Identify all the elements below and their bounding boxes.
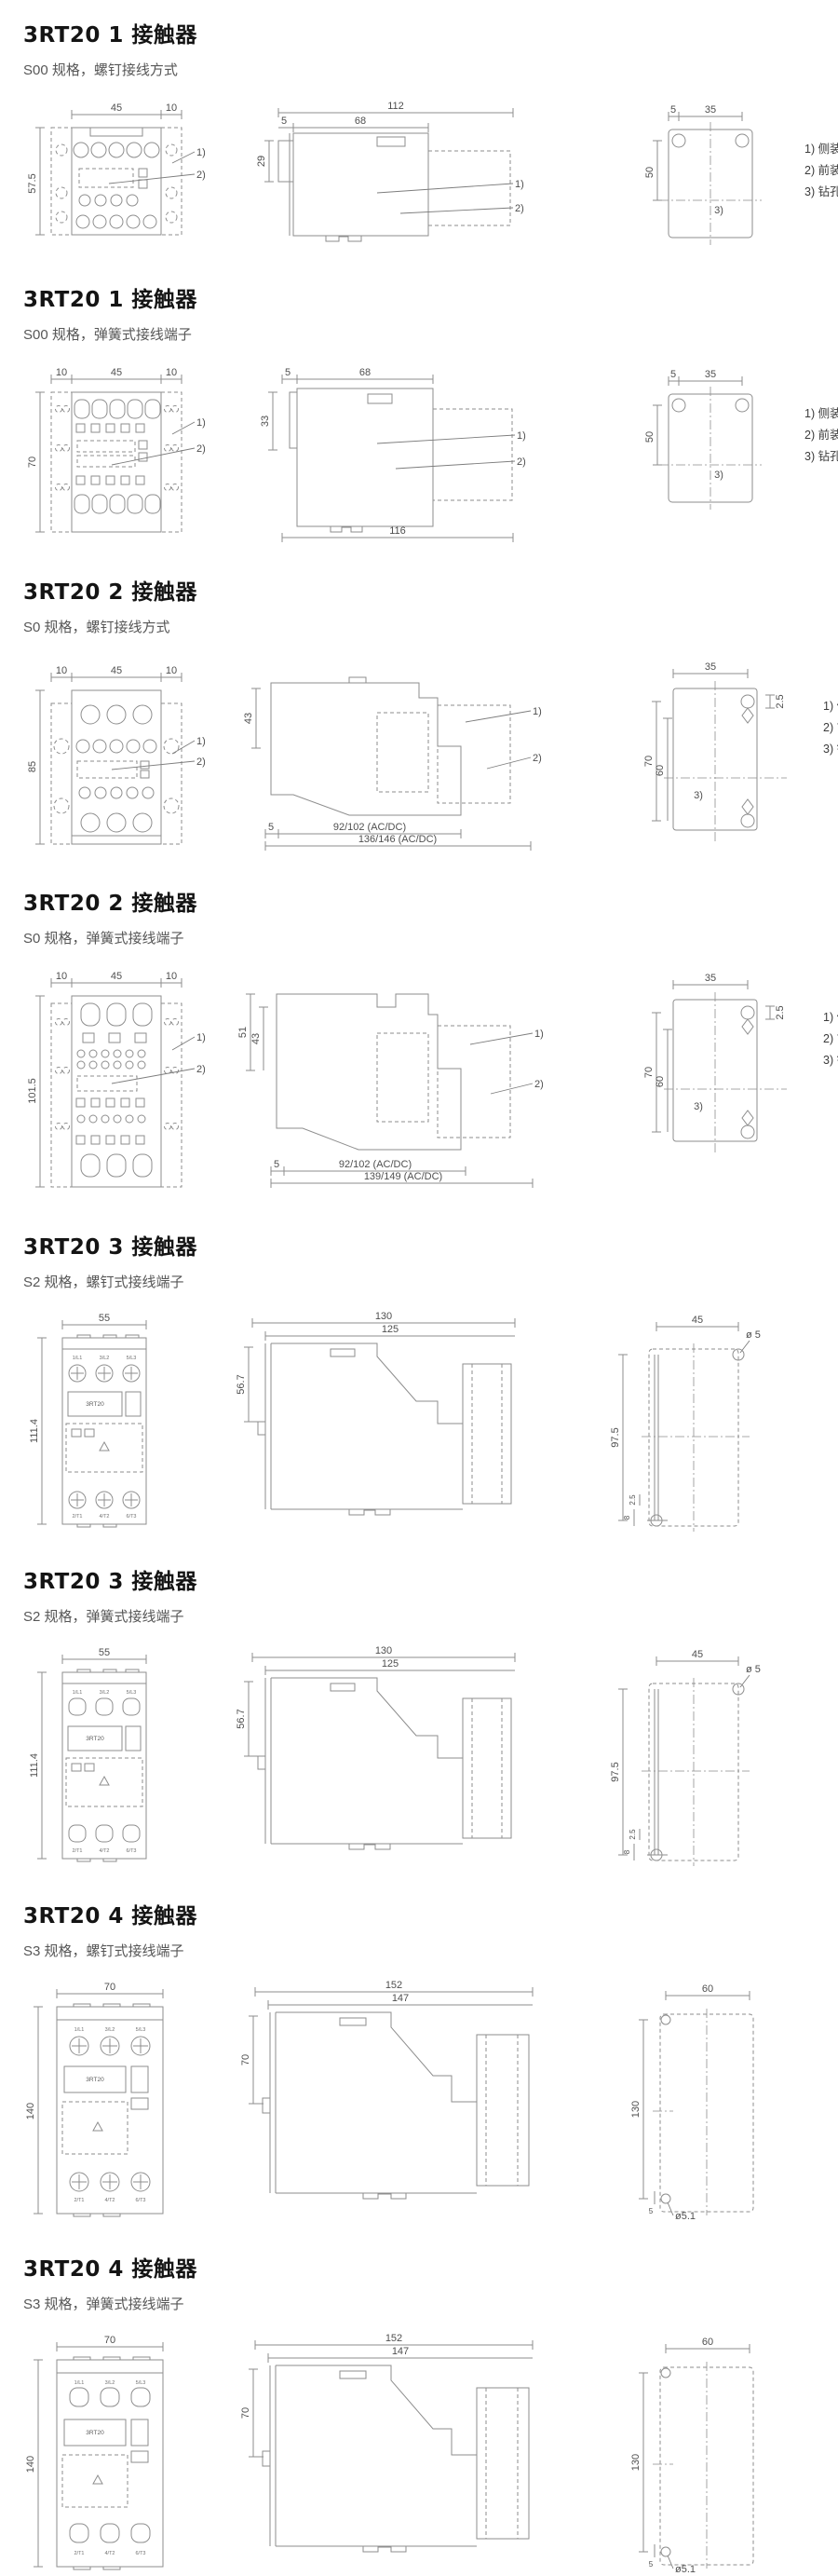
dim-depth-body: 147 <box>392 2346 409 2357</box>
terminal-label-2t1: 2/T1 <box>72 1514 82 1520</box>
dim-hole-spacing: 45 <box>692 1649 703 1660</box>
drill-outline <box>653 2362 753 2569</box>
dim-flange-left: 10 <box>56 367 67 378</box>
section-subtitle: S3 规格，弹簧式接线端子 <box>23 2294 838 2313</box>
dim-overhang: 5 <box>281 116 287 127</box>
dim-flange-right: 10 <box>166 971 177 982</box>
section-subtitle: S0 规格，弹簧式接线端子 <box>23 928 838 947</box>
callout-front-aux: 2) <box>196 756 206 768</box>
dim-hole-spacing: 60 <box>702 2337 713 2348</box>
side-dimensions: 130 125 56.7 <box>236 1311 515 1422</box>
dim-depth-total: 112 <box>387 101 404 112</box>
dim-width-body: 45 <box>111 367 122 378</box>
dim-hole-vertical: 50 <box>644 167 656 178</box>
drill-outline <box>664 992 787 1154</box>
front-view-drawing: 10 45 10 101.5 <box>23 968 209 1201</box>
dim-base-offset: 8 <box>623 1849 631 1854</box>
device-brand-label: 3RT20 <box>86 1401 104 1408</box>
side-dimensions: 152 147 70 <box>240 1980 533 2104</box>
terminal-label-3l2: 3/L2 <box>100 1690 110 1696</box>
side-outline <box>271 677 510 815</box>
front-dimensions: 10 45 10 101.5 <box>27 971 182 1187</box>
drawings-row: 10 45 10 85 <box>23 657 838 857</box>
drill-outline <box>659 122 762 245</box>
mounting-hole <box>672 399 685 412</box>
dim-front-height: 70 <box>240 2407 251 2419</box>
side-outline <box>258 1343 511 1515</box>
section-title: 3RT20 2 接触器 <box>23 574 838 606</box>
dim-depth-total: 139/149 (AC/DC) <box>364 1171 442 1182</box>
callout-side-aux: 1) <box>196 147 206 158</box>
terminal-label-5l3: 5/L3 <box>136 2380 146 2386</box>
dim-hole-vertical: 50 <box>644 431 656 443</box>
mounting-hole-top <box>661 2015 670 2024</box>
dim-width: 70 <box>104 2335 115 2346</box>
drill-plan-label: 3) <box>694 790 703 801</box>
dim-width: 70 <box>104 1982 115 1993</box>
front-view-drawing: 10 45 10 85 <box>23 657 209 857</box>
side-outline <box>277 994 510 1150</box>
dim-base-offset: 5 <box>649 2207 654 2215</box>
section-3rt202-spring: 3RT20 2 接触器 S0 规格，弹簧式接线端子 10 45 10 101.5 <box>0 885 838 1201</box>
terminal-label-2t1: 2/T1 <box>74 2551 84 2556</box>
legend-item-2: 2) 前装辅助触头 <box>823 1029 838 1050</box>
side-view-drawing: 51 43 5 92/102 (AC/DC) 139/149 (AC/DC) <box>237 968 549 1201</box>
dim-hole-vertical: 130 <box>630 2454 642 2471</box>
front-view-drawing: 55 111.4 1/L1 3/L2 5/L3 3RT20 <box>23 1646 196 1870</box>
dim-height: 111.4 <box>29 1419 40 1443</box>
legend-item-1: 1) 侧装辅助触头 <box>823 1007 838 1029</box>
dim-hole-spacing: 35 <box>705 661 716 673</box>
hole-diameter-label: ø5.1 <box>675 2564 696 2575</box>
front-view-drawing: 45 10 57.5 <box>23 100 209 253</box>
section-subtitle: S0 规格，螺钉接线方式 <box>23 617 838 636</box>
dim-hole-vertical-inner: 60 <box>655 1076 666 1087</box>
terminal-label-1l1: 1/L1 <box>74 2380 85 2386</box>
dim-hole-vertical-outer: 70 <box>643 756 655 767</box>
side-view-drawing: 5 68 33 116 1) <box>237 364 545 546</box>
side-dimensions: 51 43 5 92/102 (AC/DC) 139/149 (AC/DC) <box>237 994 533 1188</box>
legend: 1) 侧装辅助触头 2) 前装辅助触头 3) 钻孔图 <box>804 139 838 203</box>
mounting-hole-top <box>661 2368 670 2378</box>
dim-flange-left: 10 <box>56 665 67 676</box>
mounting-hole <box>736 134 749 147</box>
dim-depth-total: 130 <box>375 1645 392 1656</box>
drawings-row: 10 45 10 101.5 <box>23 968 838 1201</box>
callout-front-aux: 2) <box>534 1079 544 1090</box>
dim-flange-right: 10 <box>166 367 177 378</box>
callout-side-aux: 1) <box>196 1032 206 1043</box>
side-dimensions: 5 68 33 116 <box>260 367 513 542</box>
section-title: 3RT20 1 接触器 <box>23 17 838 48</box>
front-dimensions: 45 10 57.5 <box>27 102 182 235</box>
dim-depth-body: 125 <box>382 1324 399 1335</box>
hole-diameter-label: ø5.1 <box>675 2211 696 2222</box>
section-3rt204-spring: 3RT20 4 接触器 S3 规格，弹簧式接线端子 70 140 1/L1 3/… <box>0 2251 838 2576</box>
dim-depth-body: 125 <box>382 1658 399 1670</box>
mounting-hole-bottom <box>661 2547 670 2556</box>
dim-width-flange: 10 <box>166 102 177 114</box>
dim-width: 55 <box>99 1647 110 1658</box>
dim-slot-offset: 2.5 <box>775 1005 786 1019</box>
callout-side-aux: 1) <box>534 1029 544 1040</box>
callout-side-aux: 1) <box>196 417 206 429</box>
drawings-row: 55 111.4 1/L1 3/L2 5/L3 3RT20 <box>23 1646 838 1870</box>
dim-hole-vertical-inner: 60 <box>655 765 666 776</box>
dim-depth-total: 116 <box>389 525 406 537</box>
section-title: 3RT20 3 接触器 <box>23 1229 838 1261</box>
terminal-label-6t3: 6/T3 <box>135 2551 145 2556</box>
section-subtitle: S3 规格，螺钉式接线端子 <box>23 1941 838 1960</box>
section-subtitle: S00 规格，螺钉接线方式 <box>23 60 838 79</box>
legend: 1) 侧装辅助触头 2) 前装辅助触头 3) 钻孔图 <box>823 1007 838 1071</box>
side-callouts: 1) 2) <box>470 1029 544 1094</box>
section-3rt204-screw: 3RT20 4 接触器 S3 规格，螺钉式接线端子 70 140 1/L1 3/… <box>0 1898 838 2223</box>
hole-diameter-label: ø 5 <box>746 1329 761 1341</box>
drill-dimensions: 5 35 50 <box>644 104 742 200</box>
catalog-page: 3RT20 1 接触器 S00 规格，螺钉接线方式 45 10 57.5 <box>0 0 838 2576</box>
side-view-drawing: 152 147 70 <box>242 1981 554 2223</box>
dim-overhang: 5 <box>285 367 291 378</box>
front-outline <box>51 690 182 844</box>
keyhole-bottom <box>741 814 754 827</box>
drill-dimensions: 60 130 5 ø5.1 <box>630 2337 750 2575</box>
dim-slot-offset: 2.5 <box>628 1829 637 1840</box>
dim-hole-vertical: 97.5 <box>610 1762 621 1781</box>
legend-item-2: 2) 前装辅助触头 <box>823 717 838 739</box>
legend-item-1: 1) 侧装辅助触头 <box>804 139 838 160</box>
legend-item-3: 3) 钻孔图 <box>804 182 838 203</box>
dim-width-body: 45 <box>111 102 122 114</box>
terminal-label-4t2: 4/T2 <box>99 1848 109 1854</box>
mounting-hole <box>672 134 685 147</box>
drawings-row: 45 10 57.5 <box>23 100 838 253</box>
dim-depth-total: 130 <box>375 1311 392 1322</box>
drill-outline <box>653 2009 753 2215</box>
section-subtitle: S00 规格，弹簧式接线端子 <box>23 324 838 344</box>
legend-item-2: 2) 前装辅助触头 <box>804 425 838 446</box>
dim-depth-total: 152 <box>385 1980 402 1991</box>
dim-coil-height: 29 <box>256 156 267 167</box>
terminal-label-1l1: 1/L1 <box>74 2027 85 2033</box>
drill-pattern-drawing: 5 35 50 3) <box>642 364 782 518</box>
front-dimensions: 10 45 10 85 <box>27 665 182 844</box>
section-3rt201-screw: 3RT20 1 接触器 S00 规格，螺钉接线方式 45 10 57.5 <box>0 17 838 253</box>
side-callouts: 1) 2) <box>377 179 524 214</box>
side-view-drawing: 130 125 56.7 <box>237 1646 535 1870</box>
section-3rt201-spring: 3RT20 1 接触器 S00 规格，弹簧式接线端子 10 45 10 70 <box>0 281 838 546</box>
section-subtitle: S2 规格，螺钉式接线端子 <box>23 1272 838 1291</box>
dim-top-height: 43 <box>243 713 254 724</box>
keyhole-top <box>741 1006 754 1019</box>
dim-depth-body: 147 <box>392 1993 409 2004</box>
legend-item-3: 3) 钻孔图 <box>823 739 838 760</box>
dim-depth-total: 152 <box>385 2333 402 2344</box>
mounting-hole <box>736 399 749 412</box>
dim-width: 55 <box>99 1313 110 1324</box>
drill-outline <box>642 1678 750 1866</box>
callout-front-aux: 2) <box>196 443 206 455</box>
side-dimensions: 152 147 70 <box>240 2333 533 2457</box>
terminal-label-2t1: 2/T1 <box>74 2198 84 2203</box>
section-title: 3RT20 4 接触器 <box>23 1898 838 1929</box>
terminal-label-4t2: 4/T2 <box>104 2551 115 2556</box>
dim-hole-spacing: 60 <box>702 1983 713 1995</box>
terminal-label-3l2: 3/L2 <box>105 2380 115 2386</box>
terminal-label-5l3: 5/L3 <box>127 1356 137 1361</box>
dim-hole-spacing: 35 <box>705 369 716 380</box>
terminal-label-5l3: 5/L3 <box>136 2027 146 2033</box>
drawings-row: 10 45 10 70 <box>23 364 838 546</box>
front-outline: 1/L1 3/L2 5/L3 3RT20 2/T1 4/T2 6/T3 <box>62 1670 146 1861</box>
legend-item-1: 1) 侧装辅助触头 <box>823 696 838 717</box>
dim-front-height: 56.7 <box>236 1709 247 1728</box>
front-outline <box>51 392 182 532</box>
side-outline <box>290 388 512 532</box>
dim-width-body: 45 <box>111 665 122 676</box>
legend: 1) 侧装辅助触头 2) 前装辅助触头 3) 钻孔图 <box>804 403 838 468</box>
dim-clip-height: 33 <box>260 416 271 427</box>
side-outline <box>263 2365 529 2552</box>
section-3rt203-screw: 3RT20 3 接触器 S2 规格，螺钉式接线端子 55 111.4 1/L1 … <box>0 1229 838 1535</box>
dim-slot-offset: 2.5 <box>775 694 786 708</box>
callout-front-aux: 2) <box>533 753 542 764</box>
terminal-label-2t1: 2/T1 <box>72 1848 82 1854</box>
drill-plan-label: 3) <box>714 470 723 481</box>
device-brand-label: 3RT20 <box>86 2077 104 2083</box>
drill-dimensions: 35 2.5 70 60 <box>643 973 786 1132</box>
drill-dimensions: 60 130 5 ø5.1 <box>630 1983 750 2222</box>
dim-top-height-inner: 43 <box>250 1033 262 1044</box>
side-callouts: 1) 2) <box>377 430 526 469</box>
front-outline <box>51 128 182 235</box>
dim-hole-spacing: 35 <box>705 973 716 984</box>
front-outline: 1/L1 3/L2 5/L3 3RT20 2/T1 4/T2 6/T3 <box>57 2357 163 2569</box>
front-view-drawing: 70 140 1/L1 3/L2 5/L3 3RT20 <box>23 2334 200 2576</box>
drill-pattern-drawing: 5 35 50 3) <box>642 100 782 253</box>
legend-item-1: 1) 侧装辅助触头 <box>804 403 838 425</box>
dim-base-offset: 5 <box>649 2560 654 2569</box>
front-view-drawing: 70 140 1/L1 3/L2 5/L3 3RT20 <box>23 1981 200 2223</box>
dim-hole-spacing: 45 <box>692 1315 703 1326</box>
terminal-label-1l1: 1/L1 <box>73 1356 83 1361</box>
section-title: 3RT20 3 接触器 <box>23 1563 838 1595</box>
terminal-label-1l1: 1/L1 <box>73 1690 83 1696</box>
callout-front-aux: 2) <box>196 1064 206 1075</box>
legend: 1) 侧装辅助触头 2) 前装辅助触头 3) 钻孔图 <box>823 696 838 760</box>
dim-height: 140 <box>25 2103 36 2119</box>
front-outline: 1/L1 3/L2 5/L3 3RT20 2/T1 4/T <box>62 1335 146 1527</box>
dim-hole-vertical: 130 <box>630 2101 642 2118</box>
dim-height: 140 <box>25 2456 36 2473</box>
section-subtitle: S2 规格，弹簧式接线端子 <box>23 1606 838 1626</box>
side-dimensions: 130 125 56.7 <box>236 1645 515 1756</box>
drill-outline <box>659 387 762 510</box>
device-brand-label: 3RT20 <box>86 1736 104 1742</box>
section-title: 3RT20 2 接触器 <box>23 885 838 917</box>
section-title: 3RT20 4 接触器 <box>23 2251 838 2283</box>
dim-base-offset: 8 <box>623 1515 631 1520</box>
dim-base-offset: 5 <box>274 1159 279 1170</box>
dim-front-height: 70 <box>240 2054 251 2065</box>
drill-pattern-drawing: 35 2.5 70 60 3) <box>647 968 801 1168</box>
callout-side-aux: 1) <box>196 736 206 747</box>
callout-front-aux: 2) <box>196 170 206 181</box>
drill-pattern-drawing: 45 ø 5 97.5 2.5 8 <box>610 1646 773 1870</box>
drill-plan-label: 3) <box>714 205 723 216</box>
dim-width-body: 45 <box>111 971 122 982</box>
drawings-row: 70 140 1/L1 3/L2 5/L3 3RT20 <box>23 1981 838 2223</box>
section-3rt202-screw: 3RT20 2 接触器 S0 规格，螺钉接线方式 10 45 10 85 <box>0 574 838 857</box>
side-outline <box>278 133 510 241</box>
terminal-label-3l2: 3/L2 <box>105 2027 115 2033</box>
side-view-drawing: 43 5 92/102 (AC/DC) 136/146 (AC/DC) <box>237 657 549 857</box>
callout-front-aux: 2) <box>517 457 526 468</box>
mounting-hole-bottom <box>661 2194 670 2203</box>
drill-dimensions: 5 35 50 <box>644 369 742 465</box>
dim-depth-body: 68 <box>359 367 371 378</box>
side-outline <box>263 2012 529 2199</box>
dim-hole-vertical-outer: 70 <box>643 1067 655 1078</box>
callout-side-aux: 1) <box>515 179 524 190</box>
keyhole-bottom <box>741 1125 754 1138</box>
callout-side-aux: 1) <box>517 430 526 442</box>
terminal-label-4t2: 4/T2 <box>104 2198 115 2203</box>
terminal-label-6t3: 6/T3 <box>126 1848 136 1854</box>
drawings-row: 70 140 1/L1 3/L2 5/L3 3RT20 <box>23 2334 838 2576</box>
dim-depth-body: 92/102 (AC/DC) <box>333 822 406 833</box>
drill-pattern-drawing: 35 2.5 70 60 3) <box>647 657 801 857</box>
drawings-row: 55 111.4 1/L1 3/L2 5/L3 3RT20 <box>23 1312 838 1535</box>
dim-height: 57.5 <box>27 173 38 193</box>
dim-depth-body: 92/102 (AC/DC) <box>339 1159 412 1170</box>
dim-top-height-outer: 51 <box>237 1027 249 1038</box>
front-outline <box>51 996 182 1187</box>
terminal-label-4t2: 4/T2 <box>99 1514 109 1520</box>
dim-flange-left: 10 <box>56 971 67 982</box>
side-outline <box>258 1678 511 1849</box>
callout-front-aux: 2) <box>515 203 524 214</box>
dim-depth-body: 68 <box>355 116 366 127</box>
dim-hole-offset: 5 <box>670 104 676 116</box>
hole-diameter-label: ø 5 <box>746 1664 761 1675</box>
drill-dimensions: 35 2.5 70 60 <box>643 661 786 821</box>
drill-pattern-drawing: 60 130 5 ø5.1 <box>628 1981 782 2223</box>
dim-front-height: 56.7 <box>236 1374 247 1394</box>
dim-height: 85 <box>27 761 38 772</box>
section-title: 3RT20 1 接触器 <box>23 281 838 313</box>
drill-plan-label: 3) <box>694 1101 703 1112</box>
dim-depth-total: 136/146 (AC/DC) <box>358 834 437 845</box>
side-dimensions: 112 5 68 29 <box>256 101 513 182</box>
terminal-label-6t3: 6/T3 <box>126 1514 136 1520</box>
dim-height: 70 <box>27 457 38 468</box>
dim-hole-spacing: 35 <box>705 104 716 116</box>
side-view-drawing: 152 147 70 <box>242 2334 554 2576</box>
side-callouts: 1) 2) <box>466 706 542 769</box>
terminal-label-5l3: 5/L3 <box>127 1690 137 1696</box>
dim-flange-right: 10 <box>166 665 177 676</box>
drill-outline <box>664 681 787 843</box>
dim-hole-offset: 5 <box>670 369 676 380</box>
front-dimensions: 55 111.4 <box>29 1647 146 1859</box>
front-callouts: 1) 2) <box>112 736 206 770</box>
dim-height: 101.5 <box>27 1078 38 1104</box>
legend-item-3: 3) 钻孔图 <box>804 446 838 468</box>
device-brand-label: 3RT20 <box>86 2430 104 2436</box>
keyhole-top <box>741 695 754 708</box>
dim-base-offset: 5 <box>268 822 274 833</box>
drill-pattern-drawing: 60 130 5 ø5.1 <box>628 2334 782 2576</box>
front-view-drawing: 10 45 10 70 <box>23 364 209 546</box>
dim-slot-offset: 2.5 <box>628 1494 637 1506</box>
front-outline: 1/L1 3/L2 5/L3 3RT20 2/T1 4/T <box>57 2004 163 2216</box>
drill-outline <box>642 1343 750 1532</box>
section-3rt203-spring: 3RT20 3 接触器 S2 规格，弹簧式接线端子 55 111.4 1/L1 … <box>0 1563 838 1870</box>
terminal-label-6t3: 6/T3 <box>135 2198 145 2203</box>
side-view-drawing: 130 125 56.7 <box>237 1312 535 1535</box>
front-view-drawing: 55 111.4 1/L1 3/L2 5/L3 3RT20 <box>23 1312 196 1535</box>
legend-item-3: 3) 钻孔图 <box>823 1050 838 1071</box>
side-view-drawing: 112 5 68 29 1) <box>237 100 545 249</box>
terminal-label-3l2: 3/L2 <box>100 1356 110 1361</box>
dim-hole-vertical: 97.5 <box>610 1427 621 1447</box>
legend-item-2: 2) 前装辅助触头 <box>804 160 838 182</box>
drill-pattern-drawing: 45 ø 5 97.5 2.5 8 <box>610 1312 773 1535</box>
dim-height: 111.4 <box>29 1753 40 1778</box>
callout-side-aux: 1) <box>533 706 542 717</box>
